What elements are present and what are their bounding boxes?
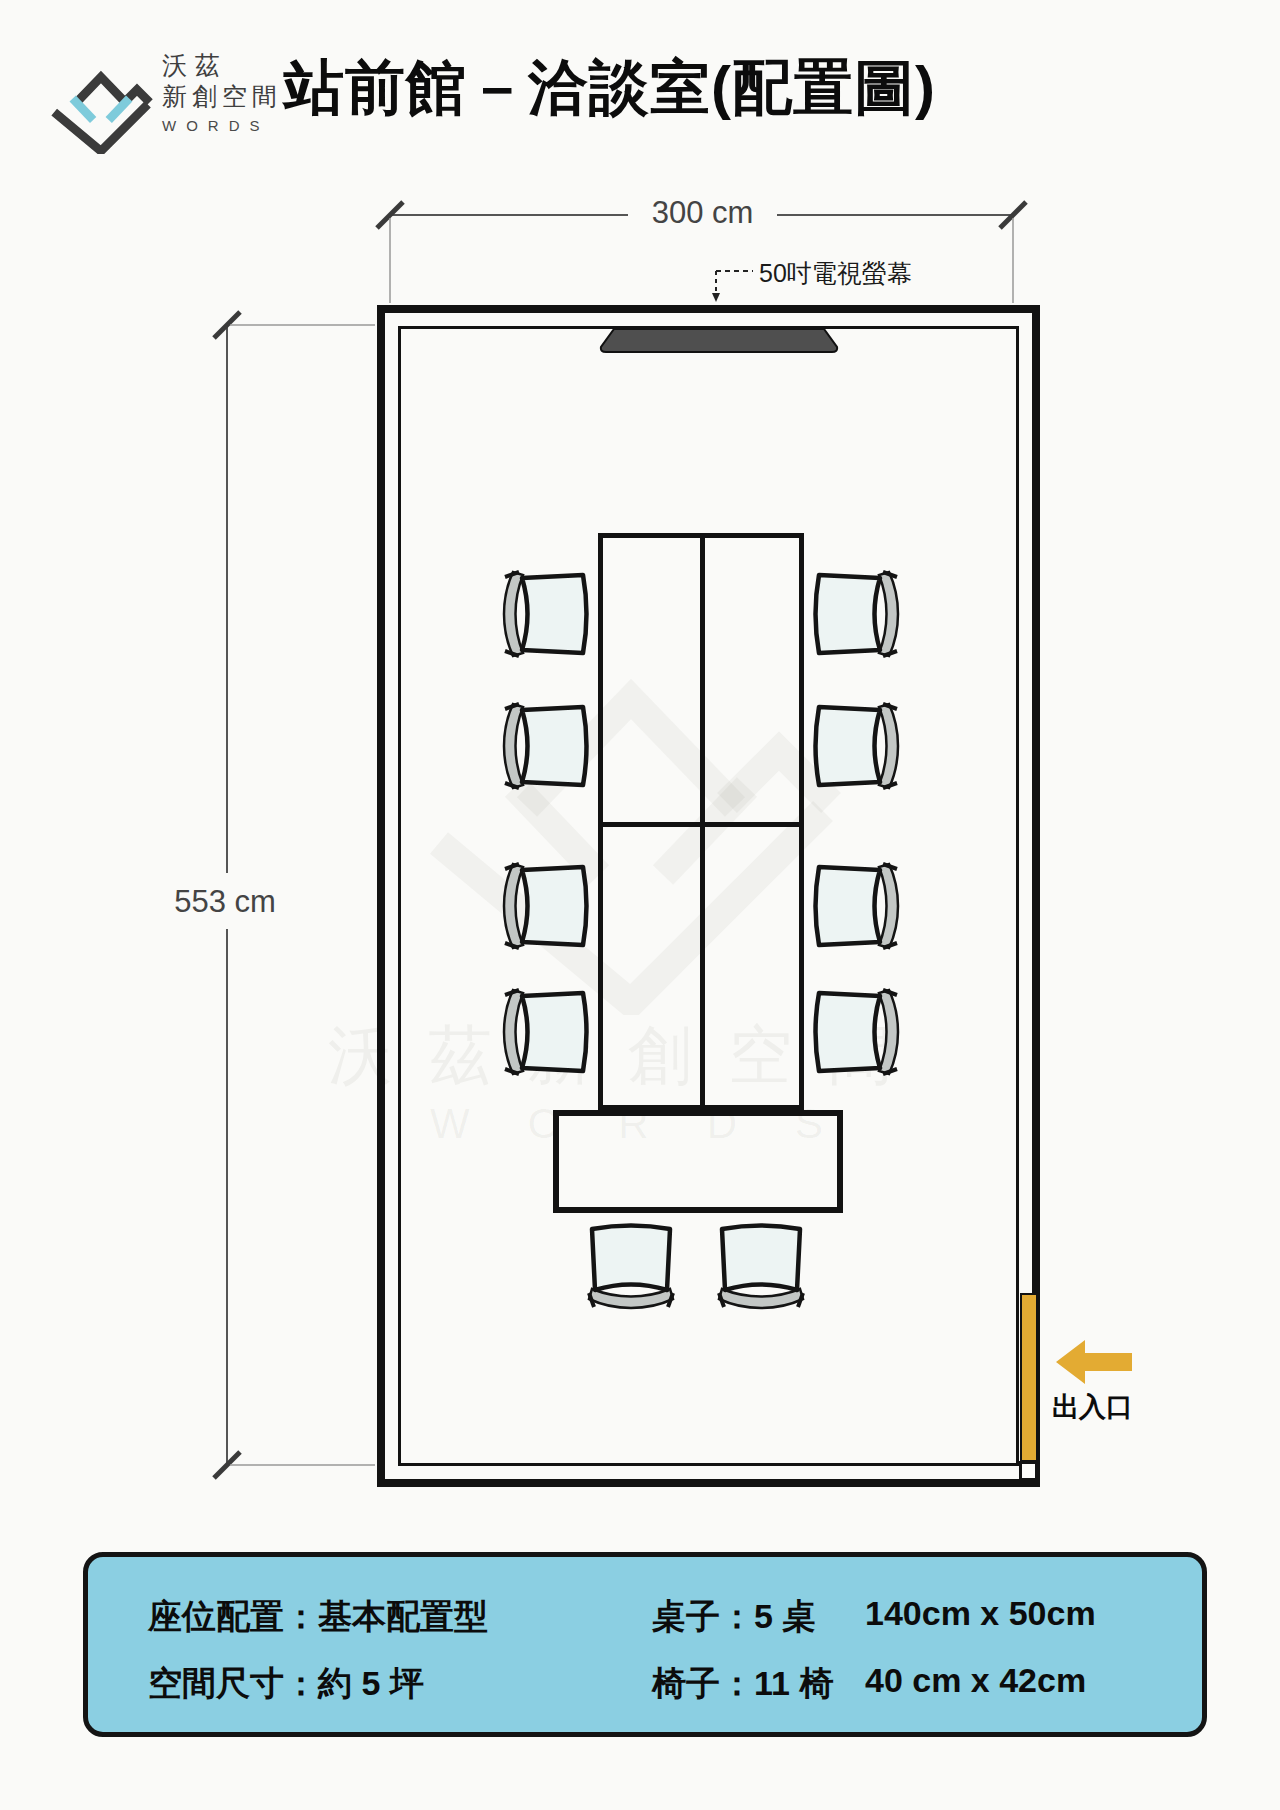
entrance-door	[1020, 1293, 1038, 1462]
info-tables-dims: 140cm x 50cm	[865, 1594, 1096, 1633]
floor-plan-page: 沃茲 新創空間 WORDS 站前館－洽談室(配置圖) 沃茲新創空間 WORDS	[0, 0, 1280, 1810]
chair	[804, 700, 910, 792]
info-chairs-label: 椅子：11 椅	[652, 1661, 833, 1707]
meeting-table-end	[553, 1110, 843, 1213]
wall-end-cap	[1019, 1461, 1038, 1481]
chair	[585, 1214, 677, 1320]
chair	[804, 860, 910, 952]
tv-screen	[599, 328, 839, 357]
info-seat-config: 座位配置：基本配置型	[148, 1594, 488, 1640]
height-dimension-label: 553 cm	[150, 884, 300, 920]
chair	[492, 986, 598, 1078]
tv-label: 50吋電視螢幕	[759, 257, 912, 290]
entrance-arrow-icon	[1056, 1340, 1132, 1388]
logo-line1: 沃茲	[162, 50, 282, 81]
words-logo-icon	[40, 42, 158, 158]
chair	[715, 1214, 807, 1320]
chair	[492, 568, 598, 660]
logo-text: 沃茲 新創空間 WORDS	[162, 50, 282, 134]
meeting-tables-block	[598, 533, 804, 1110]
page-title: 站前館－洽談室(配置圖)	[265, 48, 955, 129]
chair	[804, 986, 910, 1078]
logo-line2: 新創空間	[162, 81, 282, 112]
info-chairs-dims: 40 cm x 42cm	[865, 1661, 1086, 1700]
width-dimension-label: 300 cm	[630, 195, 775, 231]
entrance-label: 出入口	[1052, 1389, 1133, 1425]
table-divider-horizontal	[603, 822, 799, 827]
info-box	[83, 1552, 1207, 1737]
chair	[492, 860, 598, 952]
chair	[492, 700, 598, 792]
info-space-size: 空間尺寸：約 5 坪	[148, 1661, 424, 1707]
info-tables-label: 桌子：5 桌	[652, 1594, 816, 1640]
logo-line3: WORDS	[162, 117, 282, 134]
chair	[804, 568, 910, 660]
